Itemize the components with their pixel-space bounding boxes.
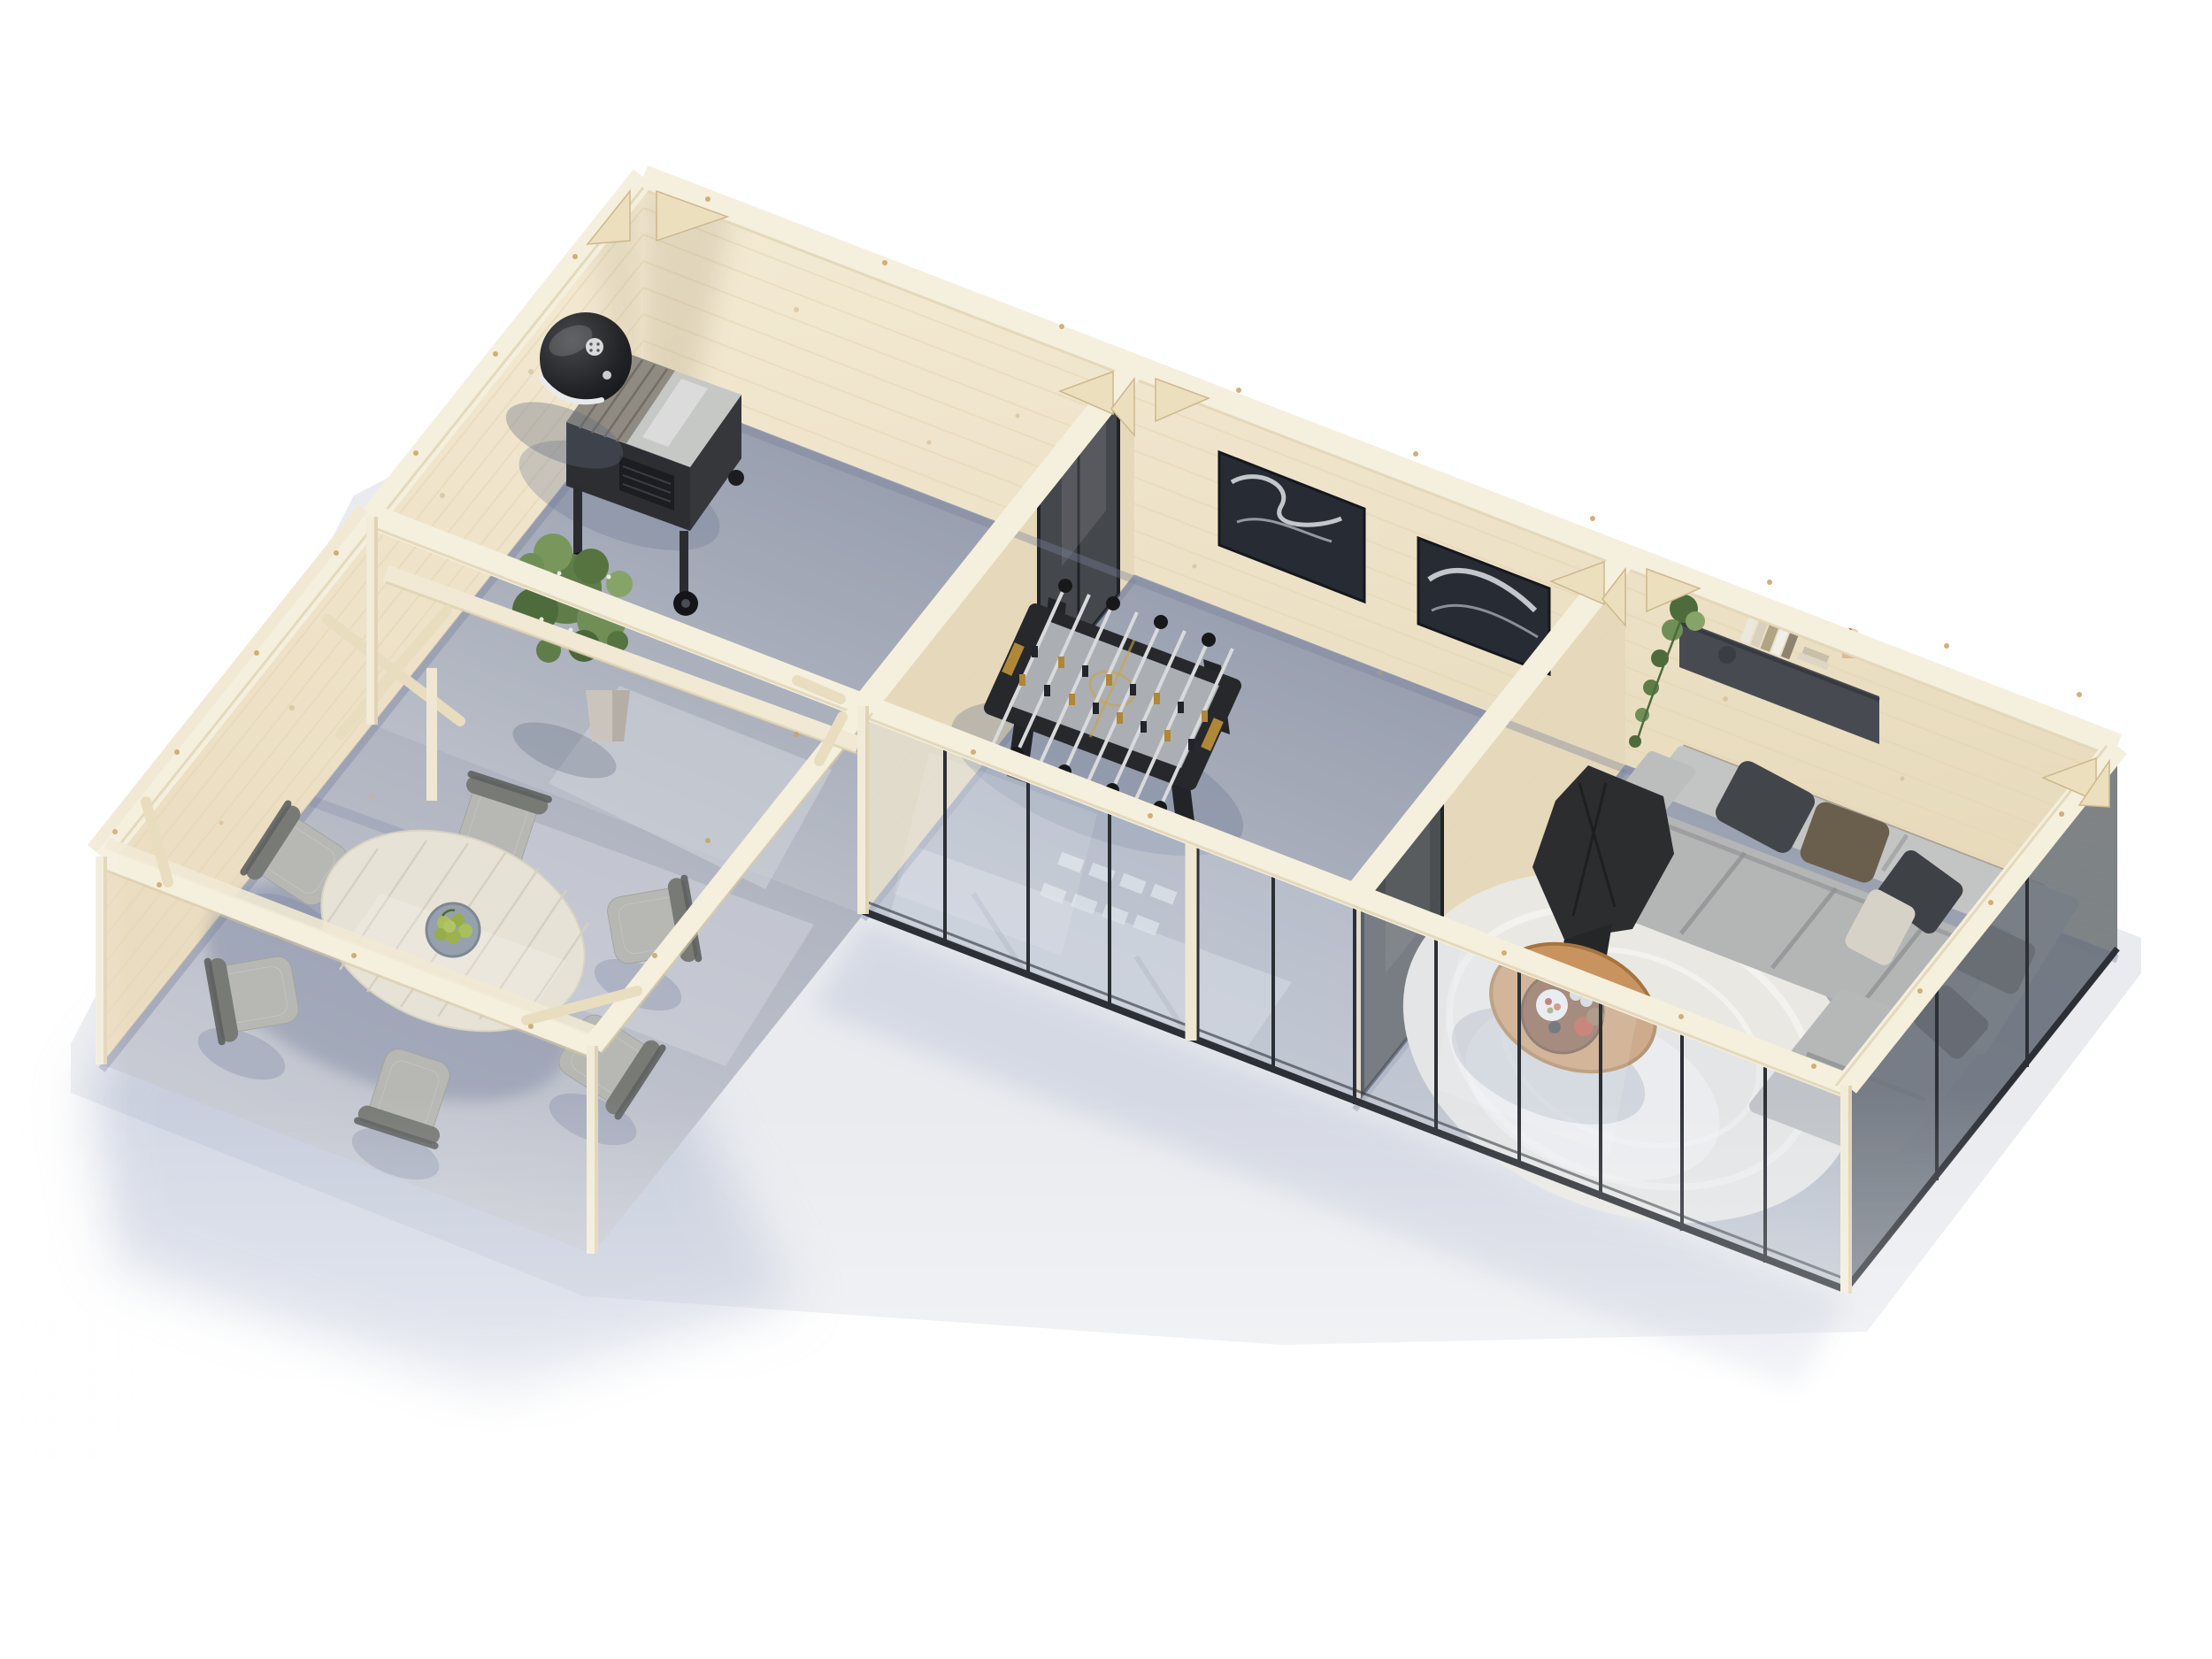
- sliding-door-jamb: [1191, 833, 1198, 1041]
- junction-jamb: [426, 668, 437, 801]
- bottom-white-fade: [0, 1088, 2212, 1659]
- cart-leg: [680, 531, 688, 593]
- garden-building-render: [0, 0, 2212, 1659]
- left-white-fade: [0, 752, 133, 1460]
- kettle-lid-knob: [586, 338, 603, 356]
- cart-leg: [573, 486, 582, 555]
- render-canvas: [0, 0, 2212, 1659]
- cart-caster: [728, 470, 744, 486]
- kettle-thermometer: [603, 371, 611, 380]
- small-vase: [1718, 646, 1736, 664]
